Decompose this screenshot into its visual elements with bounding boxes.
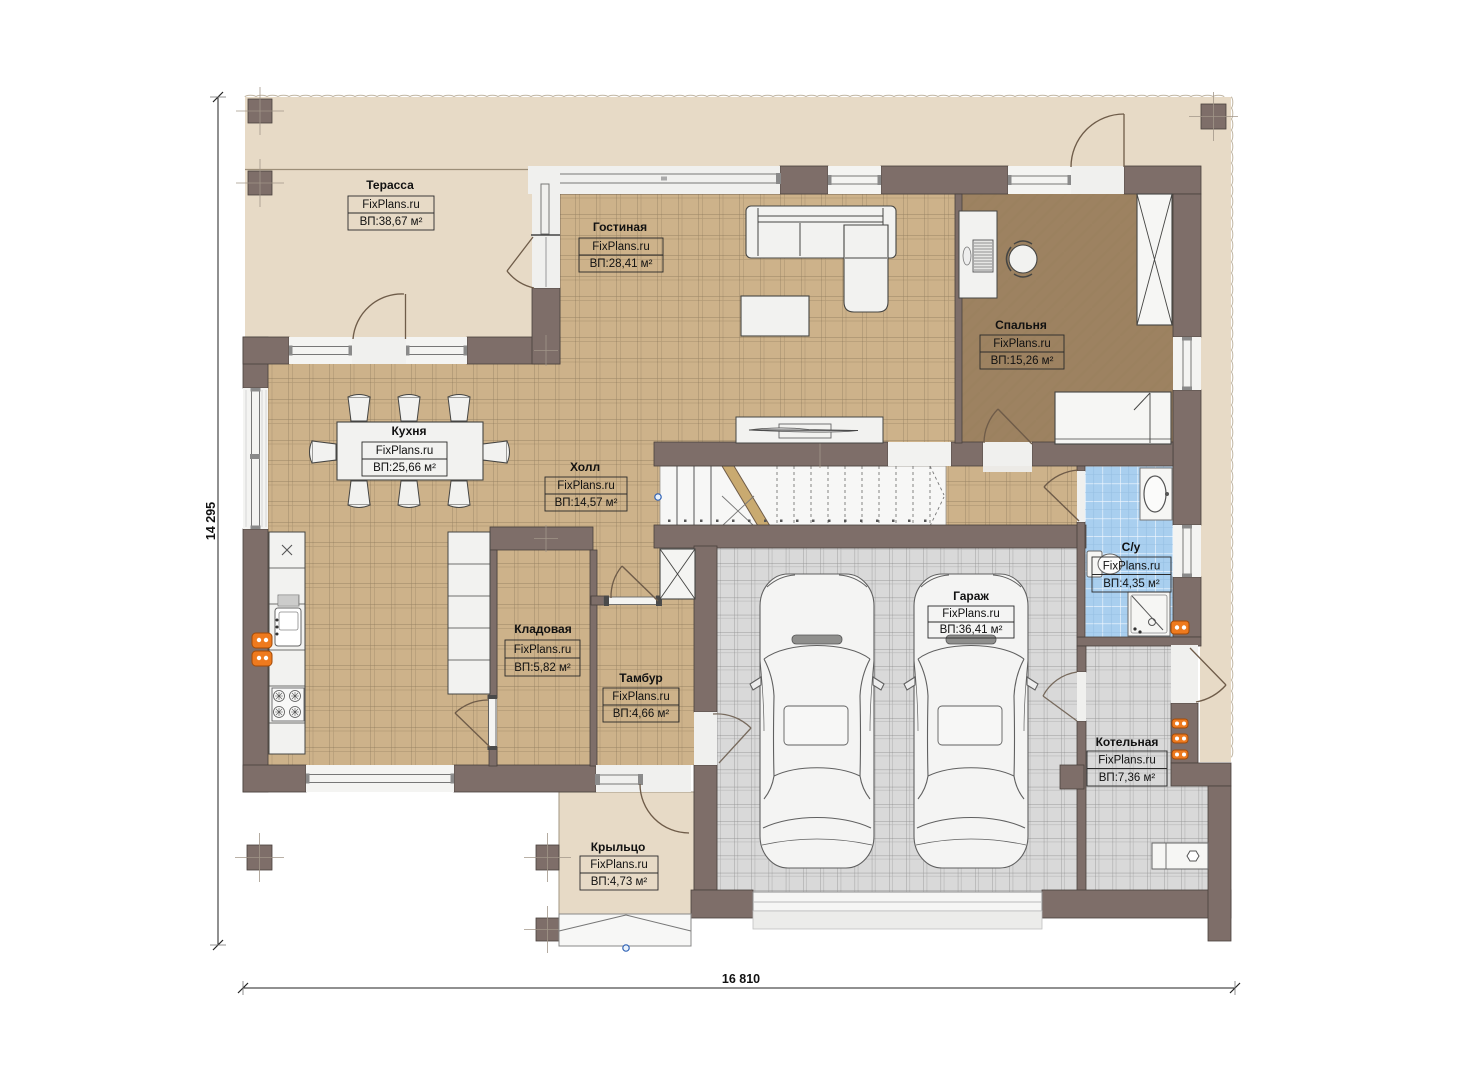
svg-text:ВП:36,41 м²: ВП:36,41 м² bbox=[940, 624, 1003, 636]
svg-text:Крыльцо: Крыльцо bbox=[591, 840, 646, 854]
svg-text:FixPlans.ru: FixPlans.ru bbox=[362, 199, 420, 211]
svg-text:14 295: 14 295 bbox=[204, 502, 218, 540]
svg-text:ВП:7,36 м²: ВП:7,36 м² bbox=[1099, 772, 1156, 784]
svg-text:Кладовая: Кладовая bbox=[514, 622, 571, 636]
svg-text:Холл: Холл bbox=[570, 460, 600, 474]
svg-text:С/у: С/у bbox=[1122, 540, 1141, 554]
svg-text:FixPlans.ru: FixPlans.ru bbox=[993, 338, 1051, 350]
svg-text:Гараж: Гараж bbox=[953, 589, 989, 603]
svg-text:ВП:5,82 м²: ВП:5,82 м² bbox=[514, 662, 571, 674]
svg-text:Котельная: Котельная bbox=[1096, 735, 1159, 749]
svg-text:FixPlans.ru: FixPlans.ru bbox=[592, 241, 650, 253]
svg-text:ВП:28,41 м²: ВП:28,41 м² bbox=[590, 258, 653, 270]
svg-text:FixPlans.ru: FixPlans.ru bbox=[590, 859, 648, 871]
svg-text:Спальня: Спальня bbox=[995, 318, 1047, 332]
svg-text:ВП:15,26 м²: ВП:15,26 м² bbox=[991, 355, 1054, 367]
svg-text:ВП:38,67 м²: ВП:38,67 м² bbox=[360, 216, 423, 228]
svg-text:FixPlans.ru: FixPlans.ru bbox=[376, 445, 434, 457]
svg-text:FixPlans.ru: FixPlans.ru bbox=[1103, 561, 1161, 573]
svg-text:Кухня: Кухня bbox=[391, 424, 426, 438]
svg-text:Тамбур: Тамбур bbox=[619, 671, 663, 685]
svg-text:ВП:4,66 м²: ВП:4,66 м² bbox=[613, 708, 670, 720]
svg-text:ВП:4,35 м²: ВП:4,35 м² bbox=[1103, 578, 1160, 590]
svg-text:FixPlans.ru: FixPlans.ru bbox=[557, 480, 615, 492]
svg-text:ВП:4,73 м²: ВП:4,73 м² bbox=[591, 876, 648, 888]
svg-text:FixPlans.ru: FixPlans.ru bbox=[612, 691, 670, 703]
svg-text:Терасса: Терасса bbox=[366, 178, 414, 192]
svg-text:FixPlans.ru: FixPlans.ru bbox=[942, 608, 1000, 620]
svg-text:FixPlans.ru: FixPlans.ru bbox=[514, 644, 572, 656]
svg-text:ВП:25,66 м²: ВП:25,66 м² bbox=[373, 462, 436, 474]
svg-text:16 810: 16 810 bbox=[722, 972, 760, 986]
svg-text:FixPlans.ru: FixPlans.ru bbox=[1098, 755, 1156, 767]
svg-text:ВП:14,57 м²: ВП:14,57 м² bbox=[555, 497, 618, 509]
svg-text:Гостиная: Гостиная bbox=[593, 220, 647, 234]
